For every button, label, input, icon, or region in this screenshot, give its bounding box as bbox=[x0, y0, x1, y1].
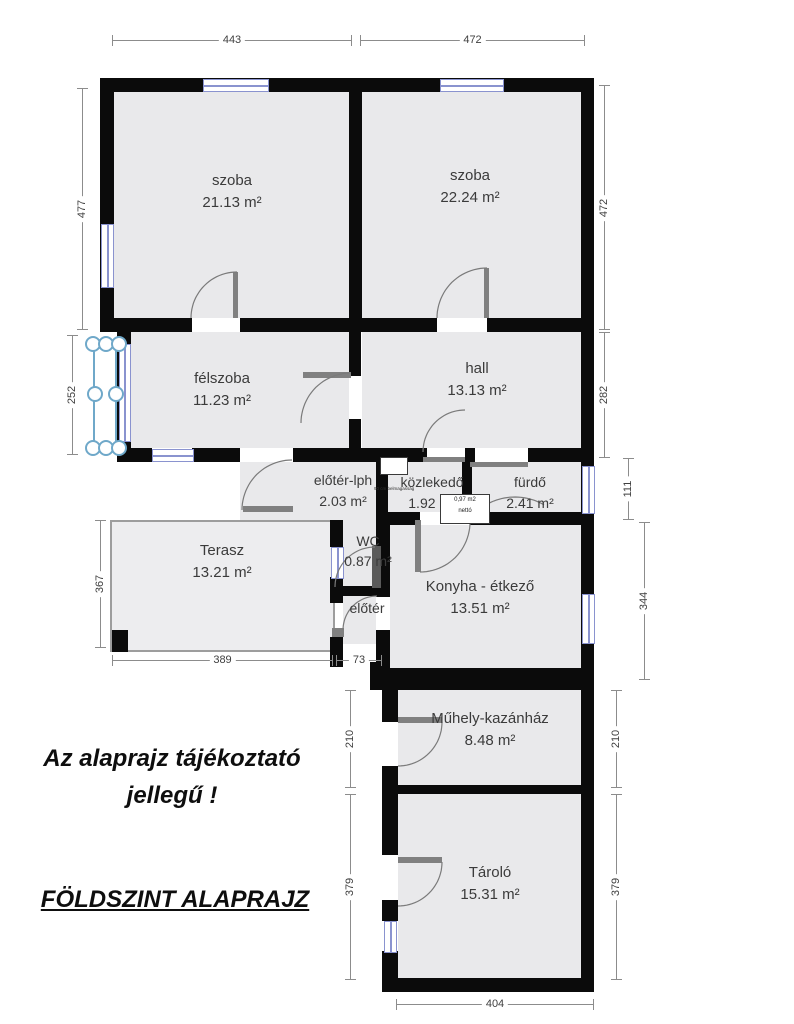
dimension-value: 210 bbox=[610, 726, 622, 752]
room-label-konyha: Konyha - étkező 13.51 m² bbox=[380, 576, 580, 620]
room-area: 13.51 m² bbox=[380, 598, 580, 620]
room-name: szoba bbox=[132, 170, 332, 192]
window bbox=[101, 224, 114, 288]
room-area: 13.13 m² bbox=[377, 380, 577, 402]
wall-segment bbox=[581, 78, 594, 462]
room-area: 0.87 m² bbox=[330, 552, 406, 572]
wall-segment bbox=[382, 951, 398, 981]
room-area: 8.48 m² bbox=[390, 730, 590, 752]
bay-circle-icon bbox=[111, 336, 127, 352]
room-name: Terasz bbox=[122, 540, 322, 562]
dimension-right-kitchen: 344 bbox=[638, 522, 650, 680]
room-name: WC bbox=[330, 532, 406, 552]
room-label-felszoba: félszoba 11.23 m² bbox=[122, 368, 322, 412]
net-area-line1: 0,97 m2 bbox=[441, 495, 489, 506]
dimension-value: 477 bbox=[76, 196, 88, 222]
door-lintel bbox=[470, 462, 528, 467]
net-area-line2: nettó bbox=[441, 506, 489, 517]
room-label-szoba-2: szoba 22.24 m² bbox=[370, 165, 570, 209]
wall-segment bbox=[192, 448, 240, 462]
dimension-top-left: 443 bbox=[112, 34, 352, 46]
door-lintel bbox=[415, 520, 421, 572]
wall-segment bbox=[382, 978, 594, 992]
window bbox=[440, 79, 504, 92]
wall-segment bbox=[465, 448, 475, 462]
dimension-value: 344 bbox=[638, 588, 650, 614]
room-label-szoba-1: szoba 21.13 m² bbox=[132, 170, 332, 214]
net-area-box: 0,97 m2 nettó bbox=[440, 494, 490, 524]
dimension-left-bay: 252 bbox=[66, 335, 78, 455]
room-label-wc: WC 0.87 m² bbox=[330, 532, 406, 571]
height-note: 90 cm belmagasság bbox=[374, 486, 414, 491]
window bbox=[203, 79, 269, 92]
dimension-value: 111 bbox=[622, 477, 634, 502]
dimension-value: 210 bbox=[344, 726, 356, 752]
room-label-hall: hall 13.13 m² bbox=[377, 358, 577, 402]
door-leaf bbox=[233, 272, 238, 318]
dimension-value: 389 bbox=[209, 654, 235, 666]
dimension-value: 443 bbox=[219, 34, 245, 46]
dimension-value: 379 bbox=[344, 874, 356, 900]
dimension-value: 252 bbox=[66, 382, 78, 408]
wall-segment bbox=[100, 318, 192, 332]
room-area: 13.21 m² bbox=[122, 562, 322, 584]
floor-plan-canvas: szoba 21.13 m² szoba 22.24 m² félszoba 1… bbox=[0, 0, 794, 1024]
room-area: 21.13 m² bbox=[132, 192, 332, 214]
room-label-muhely: Műhely-kazánház 8.48 m² bbox=[390, 708, 590, 752]
bay-circle-icon bbox=[111, 440, 127, 456]
wall-segment bbox=[349, 78, 362, 318]
room-label-terasz: Terasz 13.21 m² bbox=[122, 540, 322, 584]
dimension-storage-right: 379 bbox=[610, 794, 622, 980]
door-leaf bbox=[484, 268, 489, 318]
door-threshold bbox=[332, 628, 344, 637]
dimension-workshop-left: 210 bbox=[344, 690, 356, 788]
window bbox=[582, 594, 595, 644]
dimension-value: 472 bbox=[598, 194, 610, 220]
dimension-value: 472 bbox=[459, 34, 485, 46]
dimension-top-right: 472 bbox=[360, 34, 585, 46]
wall-segment bbox=[112, 630, 128, 652]
dimension-right-bath: 111 bbox=[622, 458, 634, 520]
room-area: 22.24 m² bbox=[370, 187, 570, 209]
dimension-value: 73 bbox=[349, 654, 369, 666]
window bbox=[384, 921, 397, 953]
plan-disclaimer: Az alaprajz tájékoztató jellegű ! bbox=[22, 740, 322, 814]
wall-segment bbox=[100, 78, 594, 92]
window bbox=[152, 449, 194, 462]
dimension-bottom-storage: 404 bbox=[396, 998, 594, 1010]
wall-segment bbox=[240, 318, 437, 332]
room-area: 15.31 m² bbox=[390, 884, 590, 906]
room-name: hall bbox=[377, 358, 577, 380]
room-name: szoba bbox=[370, 165, 570, 187]
dimension-bottom-passage: 73 bbox=[336, 654, 382, 666]
wall-segment bbox=[349, 332, 361, 376]
wall-segment bbox=[487, 318, 594, 332]
dimension-bottom-terrace: 389 bbox=[112, 654, 333, 666]
room-area: 11.23 m² bbox=[122, 390, 322, 412]
small-annotation-box bbox=[380, 457, 408, 475]
door-lintel bbox=[423, 457, 465, 462]
room-name: félszoba bbox=[122, 368, 322, 390]
wall-segment bbox=[293, 448, 351, 462]
bay-circle-icon bbox=[87, 386, 103, 402]
dimension-workshop-right: 210 bbox=[610, 690, 622, 788]
wall-segment bbox=[382, 785, 594, 794]
dimension-left-upper: 477 bbox=[76, 88, 88, 330]
plan-title: FÖLDSZINT ALAPRAJZ bbox=[40, 886, 310, 914]
room-name: Tároló bbox=[390, 862, 590, 884]
room-label-tarolo: Tároló 15.31 m² bbox=[390, 862, 590, 906]
wall-segment bbox=[528, 448, 594, 462]
dimension-storage-left: 379 bbox=[344, 794, 356, 980]
wall-segment bbox=[382, 794, 398, 855]
wall-segment bbox=[370, 680, 594, 690]
dimension-right-hall: 282 bbox=[598, 332, 610, 458]
room-name: Konyha - étkező bbox=[380, 576, 580, 598]
room-name: fürdő bbox=[470, 472, 590, 493]
dimension-left-terrace: 367 bbox=[94, 520, 106, 648]
room-name: Műhely-kazánház bbox=[390, 708, 590, 730]
dimension-value: 379 bbox=[610, 874, 622, 900]
dimension-value: 282 bbox=[598, 382, 610, 408]
dimension-value: 367 bbox=[94, 571, 106, 597]
dimension-right-upper: 472 bbox=[598, 85, 610, 330]
dimension-value: 404 bbox=[482, 998, 508, 1010]
wall-segment bbox=[100, 92, 114, 330]
